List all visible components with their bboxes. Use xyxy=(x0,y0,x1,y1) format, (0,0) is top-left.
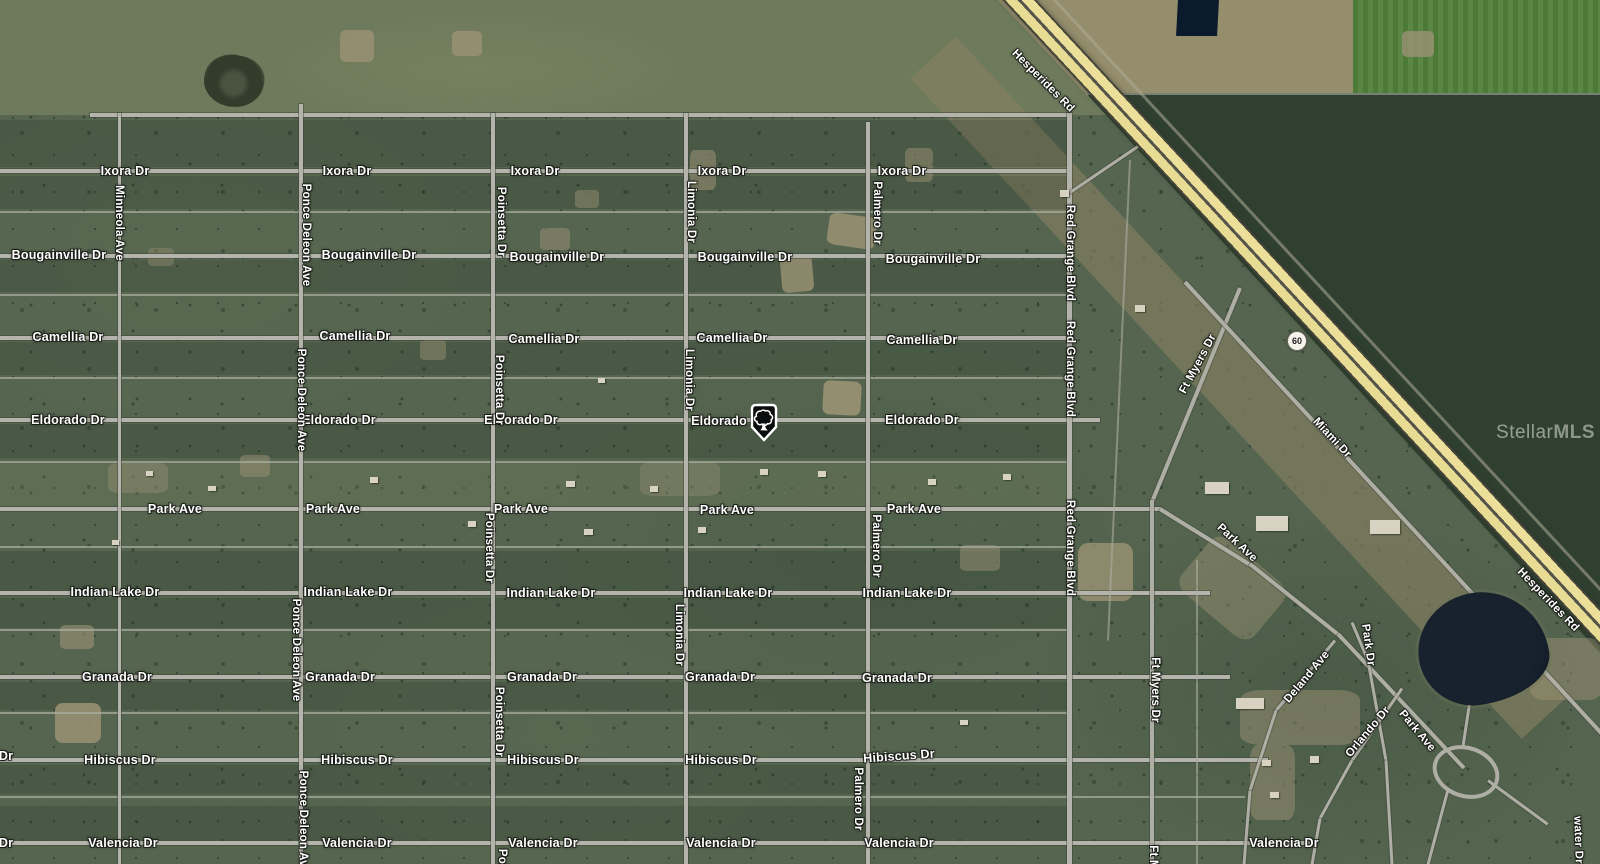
marker-shield-icon xyxy=(747,402,781,442)
street-label: Poinsetta Dr xyxy=(493,687,505,757)
street-label: Poinsetta Dr xyxy=(495,187,507,257)
street-label: Limonia Dr xyxy=(685,181,697,243)
dense-tree-band xyxy=(0,806,1069,840)
street-label: Valencia Dr xyxy=(864,836,934,850)
street-label: Ponce Deleon Ave xyxy=(295,349,307,452)
rectangular-pond xyxy=(1176,0,1219,36)
sand-clearing xyxy=(1250,745,1295,820)
dense-tree-band xyxy=(0,765,1069,794)
sand-clearing xyxy=(452,31,482,56)
building xyxy=(208,486,216,491)
crop-field xyxy=(1353,0,1600,96)
street-label: Ft Myers Dr xyxy=(1147,845,1159,864)
route-60-number: 60 xyxy=(1292,336,1302,346)
sand-clearing xyxy=(55,703,101,743)
stellar-mls-watermark: StellarMLS xyxy=(1496,422,1595,444)
sand-clearing xyxy=(822,380,862,416)
street-label: Park Ave xyxy=(494,502,548,516)
street-label: Red Grange Blvd xyxy=(1064,321,1076,417)
sand-clearing xyxy=(540,228,570,250)
street-label: Bougainville Dr xyxy=(698,250,793,264)
street-horizontal xyxy=(0,461,1069,463)
street-label: Eldorado Dr xyxy=(302,413,376,427)
street-label: Ponce Deleon Ave xyxy=(297,771,309,864)
street-label: Poinsetta Dr xyxy=(496,849,508,864)
street-label: Ixora Dr xyxy=(698,164,747,178)
street-label: Granada Dr xyxy=(862,671,932,685)
dense-tree-band xyxy=(0,682,1069,710)
street-label: Limonia Dr xyxy=(683,349,695,411)
street-label: Granada Dr xyxy=(82,670,152,684)
street-label: Ft Myers Dr xyxy=(1149,657,1161,722)
building xyxy=(370,477,378,483)
street-horizontal xyxy=(0,758,1268,762)
street-horizontal xyxy=(90,113,1069,117)
building xyxy=(584,529,593,535)
building xyxy=(1256,516,1288,531)
street-label: Valencia Dr xyxy=(508,836,578,850)
street-label: Valencia Dr xyxy=(322,836,392,850)
street-label: Minneola Ave xyxy=(113,185,125,261)
street-label: Limonia Dr xyxy=(673,604,685,666)
street-horizontal xyxy=(0,675,1230,679)
sand-clearing xyxy=(1402,31,1434,57)
street-label: Red Grange Blvd xyxy=(1064,205,1076,301)
building xyxy=(1060,190,1069,197)
building xyxy=(1310,756,1319,763)
street-horizontal xyxy=(0,712,1069,714)
building xyxy=(928,479,936,485)
street-label: Ixora Dr xyxy=(101,164,150,178)
street-label: Indian Lake Dr xyxy=(684,586,773,600)
route-60-shield: 60 xyxy=(1287,331,1307,351)
sand-clearing xyxy=(960,545,1000,571)
satellite-map[interactable]: Ixora DrIxora DrIxora DrIxora DrIxora Dr… xyxy=(0,0,1600,864)
street-horizontal xyxy=(0,377,1069,379)
street-label: water Dr xyxy=(1571,816,1585,864)
building xyxy=(468,521,476,527)
street-label: Camellia Dr xyxy=(887,333,958,347)
street-label: Granada Dr xyxy=(305,670,375,684)
street-label: Bougainville Dr xyxy=(322,248,417,262)
building xyxy=(960,720,968,725)
street-label: Dr xyxy=(0,749,13,763)
street-label: Bougainville Dr xyxy=(886,252,981,266)
street-label: Camellia Dr xyxy=(697,331,768,345)
street-label: Park Ave xyxy=(306,502,360,516)
street-label: Camellia Dr xyxy=(33,330,104,344)
street-label: Palmero Dr xyxy=(852,767,864,830)
street-label: Poinsetta Dr xyxy=(483,513,495,583)
street-horizontal xyxy=(0,294,1069,296)
building xyxy=(760,469,768,475)
sand-clearing xyxy=(340,30,374,62)
street-segment xyxy=(1086,93,1600,95)
street-label: Palmero Dr xyxy=(870,514,882,577)
street-label: Camellia Dr xyxy=(509,332,580,346)
street-label: Valencia Dr xyxy=(1249,836,1319,850)
street-label: Park Ave xyxy=(887,502,941,516)
street-label: Hibiscus Dr xyxy=(84,753,156,767)
building xyxy=(1135,305,1145,312)
street-segment xyxy=(1196,560,1198,864)
street-label: Ixora Dr xyxy=(511,164,560,178)
street-label: Indian Lake Dr xyxy=(863,586,952,600)
street-label: Valencia Dr xyxy=(88,836,158,850)
street-horizontal xyxy=(0,629,1069,631)
street-label: Red Grange Blvd xyxy=(1064,500,1076,596)
street-label: Ponce Deleon Ave xyxy=(300,184,312,287)
street-label: Ixora Dr xyxy=(878,164,927,178)
street-label: Eldorado Dr xyxy=(31,413,105,427)
dense-tree-band xyxy=(0,424,1069,458)
sand-clearing xyxy=(420,340,446,360)
street-label: Poinsetta Dr xyxy=(493,355,505,425)
building xyxy=(1370,520,1400,534)
street-horizontal xyxy=(0,546,1069,548)
building xyxy=(818,471,826,477)
street-label: Palmero Dr xyxy=(871,181,883,244)
street-horizontal xyxy=(0,841,1313,845)
sand-clearing xyxy=(240,455,270,477)
street-label: Ixora Dr xyxy=(323,164,372,178)
street-label: Hibiscus Dr xyxy=(685,753,757,767)
street-horizontal xyxy=(0,211,1069,213)
street-label: Bougainville Dr xyxy=(12,248,107,262)
street-label: Valencia Dr xyxy=(686,836,756,850)
street-label: Bougainville Dr xyxy=(510,250,605,264)
building xyxy=(1205,482,1229,494)
building xyxy=(650,486,658,492)
street-label: Hibiscus Dr xyxy=(507,753,579,767)
street-horizontal xyxy=(0,591,1210,595)
dense-tree-band xyxy=(0,598,1069,628)
sand-clearing xyxy=(575,190,599,208)
building xyxy=(1003,474,1011,480)
building xyxy=(146,471,153,476)
street-label: Indian Lake Dr xyxy=(304,585,393,599)
street-label: Indian Lake Dr xyxy=(507,586,596,600)
building xyxy=(698,527,706,533)
property-marker-pin[interactable] xyxy=(747,402,781,442)
dense-tree-band xyxy=(0,551,1069,590)
street-label: Granada Dr xyxy=(685,670,755,684)
building xyxy=(1270,792,1279,798)
building xyxy=(566,481,575,487)
street-label: Eldorado Dr xyxy=(885,413,959,427)
street-label: Park Ave xyxy=(700,503,754,517)
street-label: Camellia Dr xyxy=(320,329,391,343)
street-label: Dr xyxy=(0,836,13,850)
street-horizontal xyxy=(0,796,1245,798)
street-label: Ponce Deleon Ave xyxy=(290,599,302,702)
street-label: Hibiscus Dr xyxy=(321,753,393,767)
building xyxy=(598,378,605,383)
building xyxy=(1262,760,1271,766)
building xyxy=(1236,698,1264,709)
street-label: Indian Lake Dr xyxy=(71,585,160,599)
street-label: Park Ave xyxy=(148,502,202,516)
street-label: Granada Dr xyxy=(507,670,577,684)
building xyxy=(112,540,119,545)
